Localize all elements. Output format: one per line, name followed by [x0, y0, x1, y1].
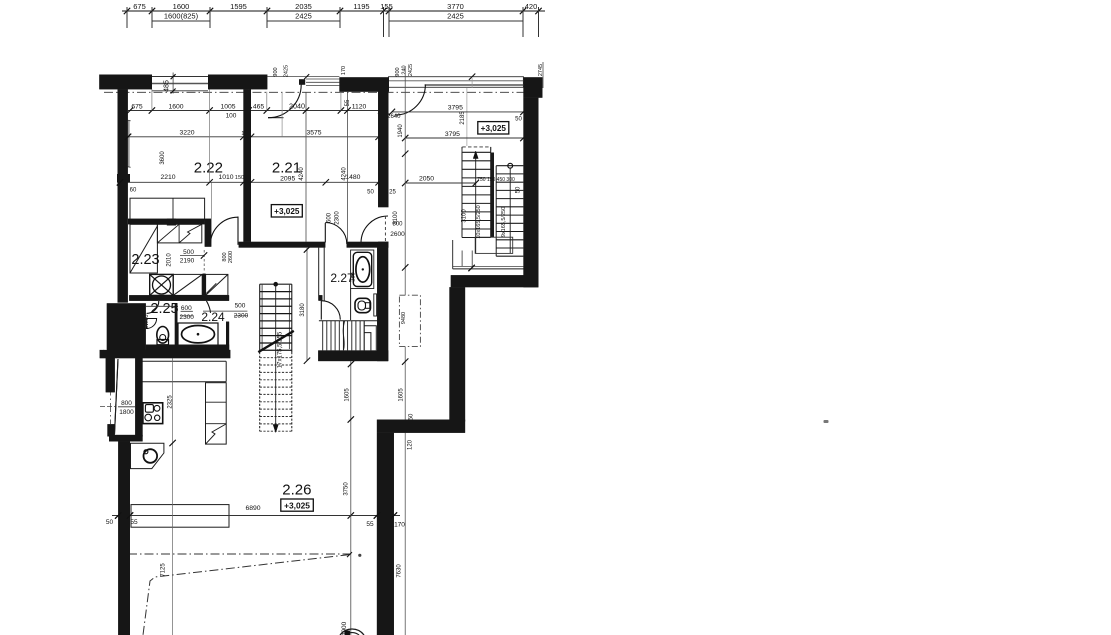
svg-text:25: 25	[389, 190, 396, 196]
svg-text:2425: 2425	[408, 64, 414, 76]
svg-text:900: 900	[273, 67, 279, 76]
svg-text:155: 155	[380, 2, 393, 11]
svg-text:50: 50	[409, 413, 415, 420]
svg-text:120: 120	[408, 439, 414, 450]
svg-text:500: 500	[235, 302, 246, 309]
svg-text:55: 55	[130, 519, 138, 526]
svg-text:1600(825): 1600(825)	[164, 12, 199, 21]
svg-text:2190: 2190	[180, 258, 195, 265]
svg-text:50: 50	[367, 190, 374, 196]
svg-text:7630: 7630	[397, 564, 403, 578]
svg-text:170: 170	[341, 66, 347, 75]
svg-text:2.26: 2.26	[282, 482, 311, 499]
svg-text:2095: 2095	[280, 176, 295, 183]
svg-text:50: 50	[516, 186, 522, 193]
svg-text:420: 420	[525, 2, 538, 11]
svg-text:600: 600	[181, 305, 192, 312]
svg-text:2.22: 2.22	[194, 160, 223, 177]
svg-text:1940: 1940	[398, 124, 404, 138]
svg-text:170: 170	[394, 522, 405, 529]
svg-text:500: 500	[183, 249, 194, 256]
svg-text:2.25: 2.25	[150, 301, 178, 317]
svg-text:2300: 2300	[179, 314, 194, 321]
svg-text:9480: 9480	[401, 312, 407, 324]
svg-text:2210: 2210	[160, 174, 175, 181]
svg-text:6890: 6890	[245, 505, 260, 512]
svg-text:2050: 2050	[419, 176, 434, 183]
svg-text:800: 800	[392, 222, 403, 228]
svg-text:3750: 3750	[344, 482, 350, 496]
svg-text:800: 800	[121, 400, 132, 407]
svg-text:1120: 1120	[352, 103, 367, 110]
svg-text:55: 55	[366, 521, 374, 528]
svg-text:2035: 2035	[295, 2, 312, 11]
svg-text:2425: 2425	[295, 12, 312, 21]
svg-text:240: 240	[402, 65, 408, 74]
svg-text:675: 675	[133, 2, 146, 11]
svg-text:2040: 2040	[289, 102, 305, 111]
svg-text:150: 150	[235, 175, 244, 181]
svg-text:2.23: 2.23	[131, 252, 159, 268]
svg-text:2425: 2425	[447, 12, 464, 21]
svg-text:3100: 3100	[461, 209, 467, 223]
svg-text:60: 60	[130, 188, 137, 194]
svg-text:1605: 1605	[399, 388, 405, 402]
svg-text:10x165,5/250: 10x165,5/250	[476, 205, 482, 238]
svg-text:3220: 3220	[179, 130, 194, 137]
svg-text:900: 900	[395, 67, 401, 76]
svg-text:3575: 3575	[306, 130, 321, 137]
svg-text:50: 50	[106, 519, 114, 526]
svg-text:485: 485	[164, 80, 171, 92]
svg-text:465: 465	[253, 103, 265, 110]
svg-text:17x175,5/255: 17x175,5/255	[278, 331, 284, 368]
svg-text:600: 600	[327, 212, 333, 223]
svg-text:+3,025: +3,025	[274, 207, 300, 216]
svg-text:3795: 3795	[445, 131, 460, 138]
svg-text:3180: 3180	[300, 303, 306, 317]
svg-text:2300: 2300	[335, 211, 341, 225]
svg-text:2.21: 2.21	[272, 160, 301, 177]
svg-text:3770: 3770	[447, 2, 464, 11]
svg-text:2425: 2425	[284, 65, 290, 77]
svg-text:50: 50	[515, 117, 522, 123]
svg-text:1595: 1595	[230, 2, 247, 11]
svg-text:250: 250	[351, 272, 357, 281]
svg-text:1195: 1195	[353, 2, 369, 11]
svg-text:100: 100	[226, 113, 237, 120]
svg-text:1005: 1005	[220, 103, 235, 110]
svg-text:675: 675	[131, 103, 143, 110]
svg-text:55: 55	[345, 99, 351, 106]
svg-text:4240: 4240	[341, 167, 347, 181]
svg-text:750 150 450 300: 750 150 450 300	[477, 177, 515, 183]
svg-text:+3,025: +3,025	[481, 124, 507, 133]
svg-text:2185: 2185	[460, 111, 466, 125]
svg-text:9x165,5/250: 9x165,5/250	[501, 207, 507, 237]
svg-text:2640: 2640	[387, 114, 401, 120]
svg-text:7125: 7125	[161, 563, 167, 577]
svg-text:1800: 1800	[119, 409, 134, 416]
svg-text:3795: 3795	[448, 105, 463, 112]
svg-text:2010: 2010	[167, 253, 173, 267]
svg-text:2.24: 2.24	[201, 310, 225, 324]
svg-text:3600: 3600	[160, 151, 166, 165]
svg-text:2600: 2600	[390, 231, 405, 238]
svg-text:1600: 1600	[168, 103, 183, 110]
svg-text:2600: 2600	[228, 251, 234, 263]
svg-text:1600: 1600	[173, 2, 190, 11]
svg-text:1605: 1605	[345, 388, 351, 402]
svg-text:+3,025: +3,025	[284, 501, 310, 511]
